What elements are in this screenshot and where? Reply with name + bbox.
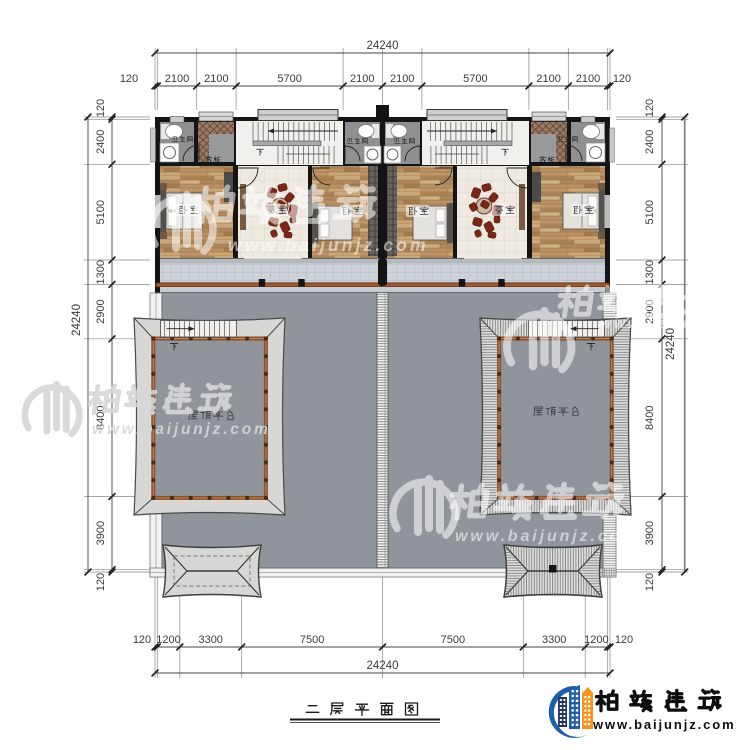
svg-text:2100: 2100 [350,73,374,85]
svg-text:120: 120 [644,99,656,117]
svg-text:7500: 7500 [300,634,324,646]
svg-text:120: 120 [133,634,151,646]
svg-text:24240: 24240 [71,304,83,336]
svg-text:1200: 1200 [156,634,180,646]
svg-text:3900: 3900 [95,521,107,545]
svg-text:www.baijunjz.com: www.baijunjz.com [92,421,271,438]
svg-text:7500: 7500 [441,634,465,646]
svg-text:24240: 24240 [367,660,399,672]
svg-text:2100: 2100 [536,73,560,85]
svg-text:www.baijunjz.com: www.baijunjz.com [600,316,750,332]
svg-text:2100: 2100 [204,73,228,85]
svg-text:1300: 1300 [644,260,656,284]
svg-text:8400: 8400 [644,405,656,429]
svg-text:www.baijunjz.com: www.baijunjz.com [455,528,640,545]
svg-text:120: 120 [644,573,656,591]
svg-text:120: 120 [120,73,138,85]
svg-text:5700: 5700 [277,73,301,85]
svg-text:3300: 3300 [198,634,222,646]
svg-text:1200: 1200 [584,634,608,646]
svg-text:5100: 5100 [644,200,656,224]
svg-text:3300: 3300 [542,634,566,646]
svg-text:2100: 2100 [165,73,189,85]
svg-text:2100: 2100 [576,73,600,85]
svg-text:24240: 24240 [665,328,677,360]
svg-text:2400: 2400 [95,130,107,154]
svg-text:1300: 1300 [95,260,107,284]
svg-text:5700: 5700 [463,73,487,85]
svg-text:2100: 2100 [390,73,414,85]
svg-text:3900: 3900 [644,521,656,545]
svg-text:2900: 2900 [95,299,107,323]
svg-text:5100: 5100 [95,200,107,224]
svg-text:120: 120 [95,573,107,591]
svg-text:120: 120 [613,73,631,85]
svg-text:2400: 2400 [644,130,656,154]
svg-text:www.baijunjz.com: www.baijunjz.com [228,235,429,255]
svg-text:www.baijunjz.com: www.baijunjz.com [592,717,736,732]
svg-text:120: 120 [615,634,633,646]
svg-text:24240: 24240 [367,40,399,52]
svg-text:120: 120 [95,99,107,117]
